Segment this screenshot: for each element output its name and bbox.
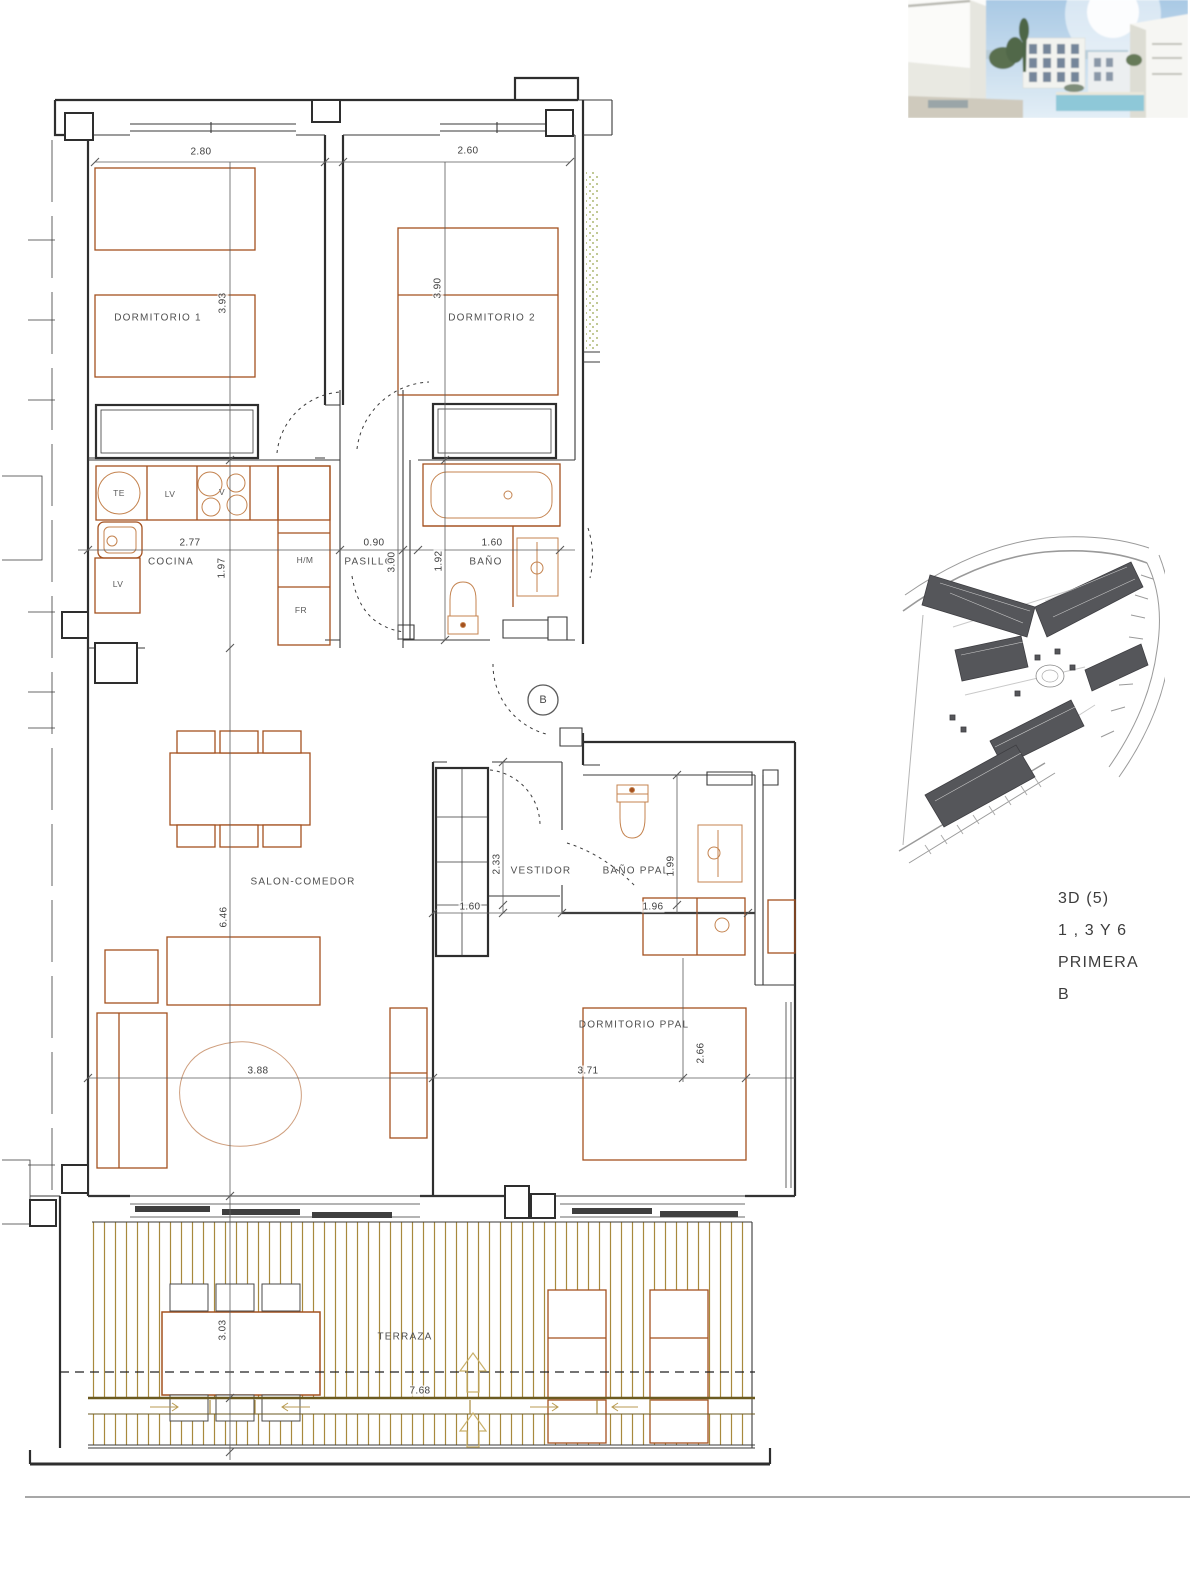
dim-cocina-depth: 1.97 [217,556,228,579]
appliance-label-hob: V [219,487,225,497]
info-line-floor: PRIMERA [1058,954,1198,972]
room-label-terraza: TERRAZA [377,1332,432,1343]
fixtures [98,472,742,1146]
room-label-vestidor: VESTIDOR [511,866,572,877]
appliance-label-lv-lower: LV [113,579,124,589]
dim-bano-depth: 1.92 [434,549,445,572]
entrance-marker-label: B [539,694,546,706]
columns [30,100,573,1226]
dim-salon-width: 3.88 [246,1066,269,1077]
room-label-bano-ppal: BAÑO PPAL. [603,866,674,877]
dim-pasillo-depth: 3.00 [387,550,398,573]
render-3d-thumbnail [908,0,1188,118]
room-label-dormitorio-2: DORMITORIO 2 [448,313,536,324]
dim-dorm-ppal-width: 3.71 [576,1066,599,1077]
dim-terraza-width: 7.68 [408,1386,431,1397]
site-plan-thumbnail [895,515,1165,865]
dim-bano-ppal-depth: 1.99 [666,854,677,877]
dim-salon-depth: 6.46 [219,905,230,928]
room-label-dormitorio-1: DORMITORIO 1 [114,313,202,324]
dim-bano-width: 1.60 [480,538,503,549]
info-line-3d: 3D (5) [1058,890,1198,908]
room-label-bano: BAÑO [469,557,502,568]
wardrobes [96,404,556,956]
dim-dorm1-width: 2.80 [189,147,212,158]
dim-vestidor-width: 1.60 [458,902,481,913]
info-line-letter: B [1058,986,1198,1004]
plan-info-block: 3D (5) 1 , 3 Y 6 PRIMERA B [1058,890,1198,1018]
appliance-label-washer: H/M [297,555,314,565]
hedge-stipple [586,172,598,350]
appliance-label-lv-upper: LV [165,489,176,499]
dim-dorm2-depth: 3.90 [433,276,444,299]
appliance-label-fridge: FR [295,605,307,615]
room-label-cocina: COCINA [148,557,194,568]
terrace-windows [135,1206,738,1218]
dim-pasillo-width: 0.90 [362,538,385,549]
dim-terraza-depth: 3.03 [218,1318,229,1341]
dim-dorm-ppal-depth: 2.66 [696,1041,707,1064]
dim-bano-ppal-width: 1.96 [641,902,664,913]
info-line-units: 1 , 3 Y 6 [1058,922,1198,940]
plan-sheet: DORMITORIO 1 DORMITORIO 2 COCINA PASILLO… [0,0,1200,1584]
dim-cocina-width: 2.77 [178,538,201,549]
dim-dorm1-depth: 3.93 [218,291,229,314]
room-label-salon-comedor: SALON-COMEDOR [250,877,355,888]
dim-dorm2-width: 2.60 [456,146,479,157]
appliance-label-te: TE [113,488,125,498]
dim-vestidor-depth: 2.33 [492,852,503,875]
room-label-dormitorio-ppal: DORMITORIO PPAL [579,1020,689,1031]
